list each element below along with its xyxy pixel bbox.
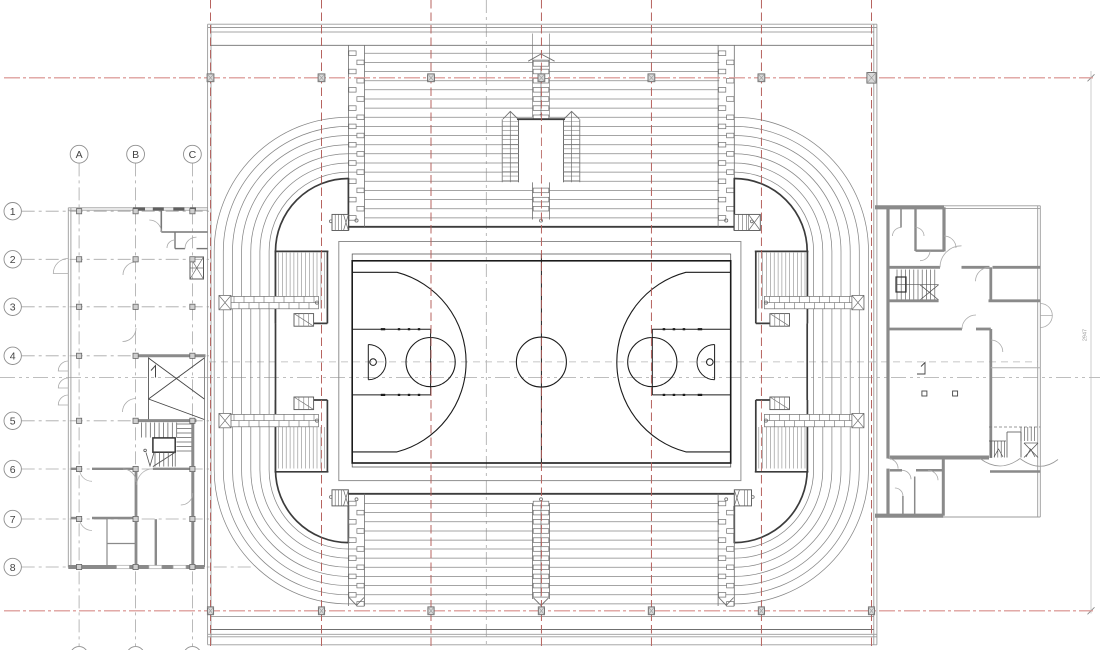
svg-text:B: B (132, 149, 139, 161)
svg-text:5: 5 (10, 416, 16, 428)
svg-text:C: C (189, 149, 197, 161)
svg-text:1: 1 (10, 206, 16, 218)
svg-text:6: 6 (10, 464, 16, 476)
svg-text:2947: 2947 (1083, 329, 1089, 341)
svg-text:8: 8 (10, 562, 16, 574)
svg-text:4: 4 (10, 351, 16, 363)
svg-text:2: 2 (10, 254, 16, 266)
svg-text:A: A (76, 149, 83, 161)
svg-text:3: 3 (10, 302, 16, 314)
svg-text:7: 7 (10, 514, 16, 526)
